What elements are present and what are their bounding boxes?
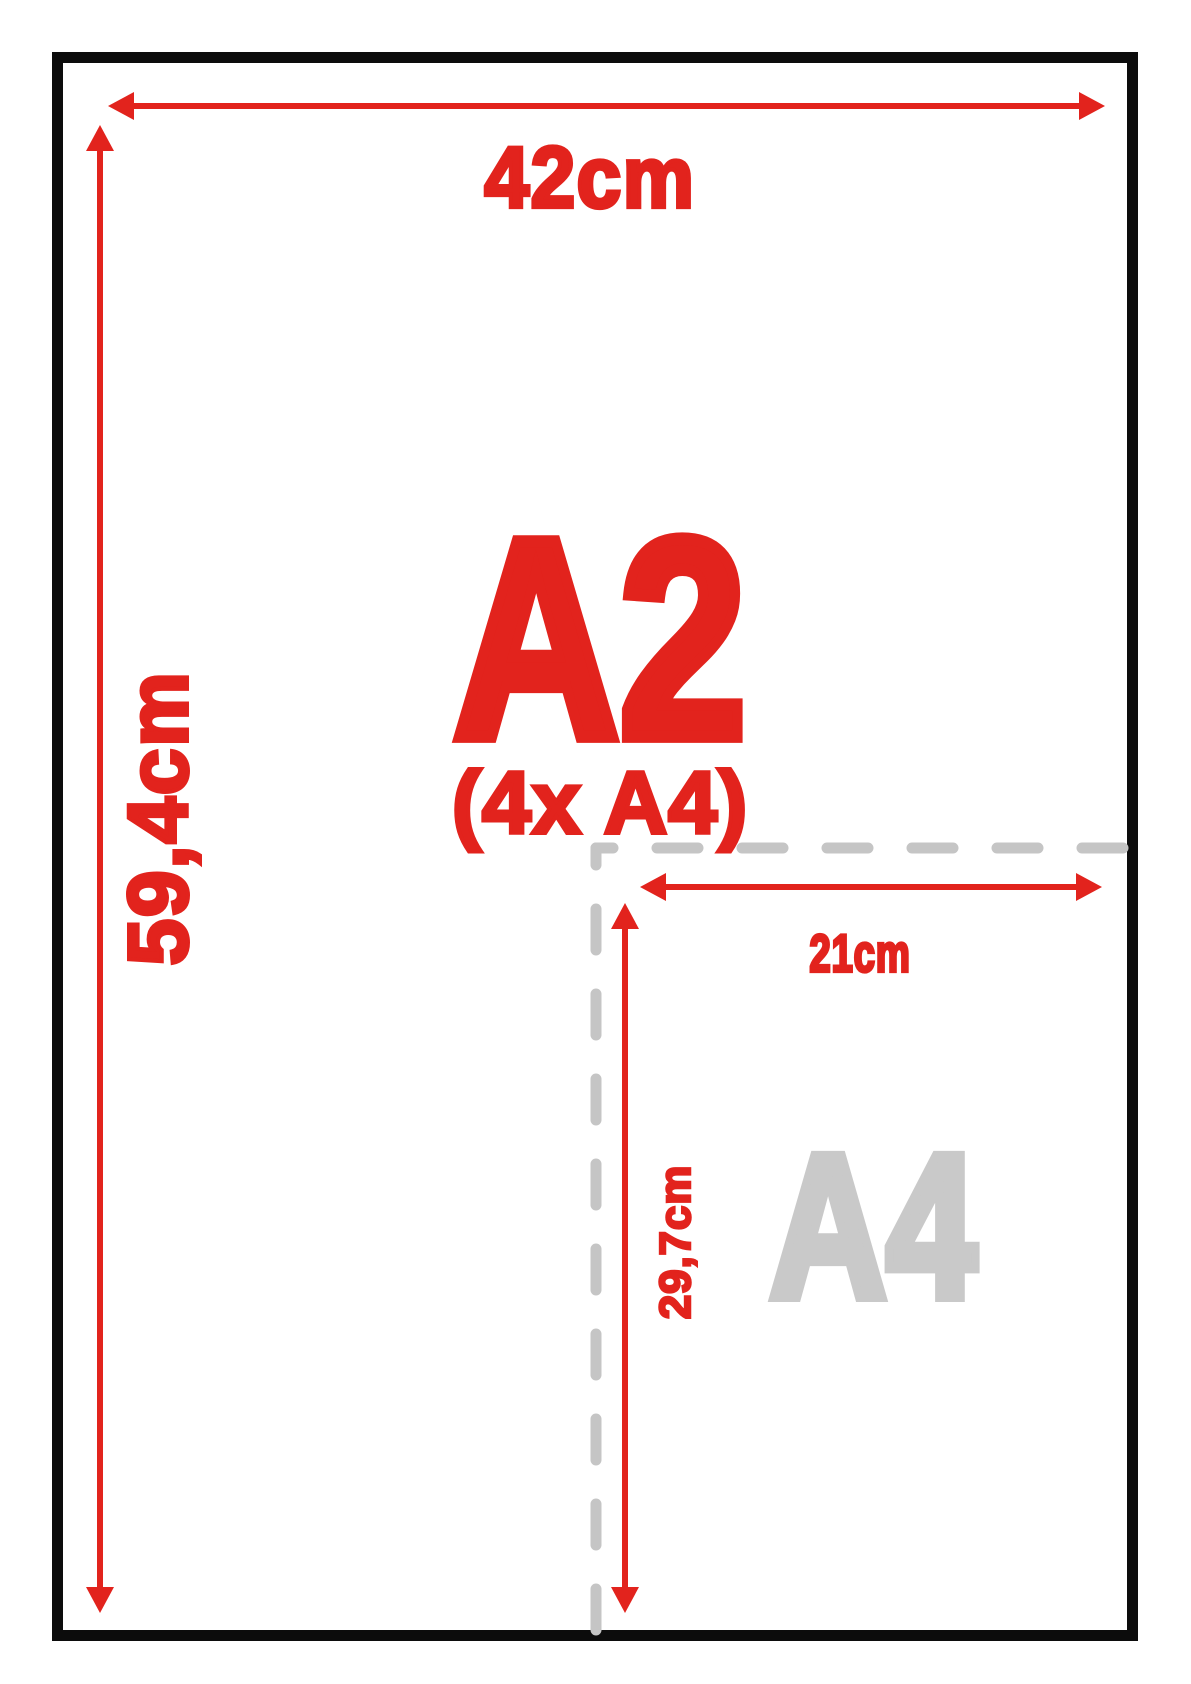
a2-size-subtitle: (4x A4) — [452, 759, 748, 847]
a4-size-title: A4 — [770, 1125, 976, 1329]
a4-width-label: 21cm — [809, 929, 910, 982]
paper-size-diagram: 42cm 59,4cm A2 (4x A4) A4 21cm 29,7cm — [0, 0, 1191, 1684]
a4-height-label: 29,7cm — [654, 1165, 698, 1320]
a2-height-label: 59,4cm — [116, 671, 200, 966]
a2-width-label: 42cm — [484, 135, 695, 221]
a2-size-title: A2 — [453, 498, 746, 782]
